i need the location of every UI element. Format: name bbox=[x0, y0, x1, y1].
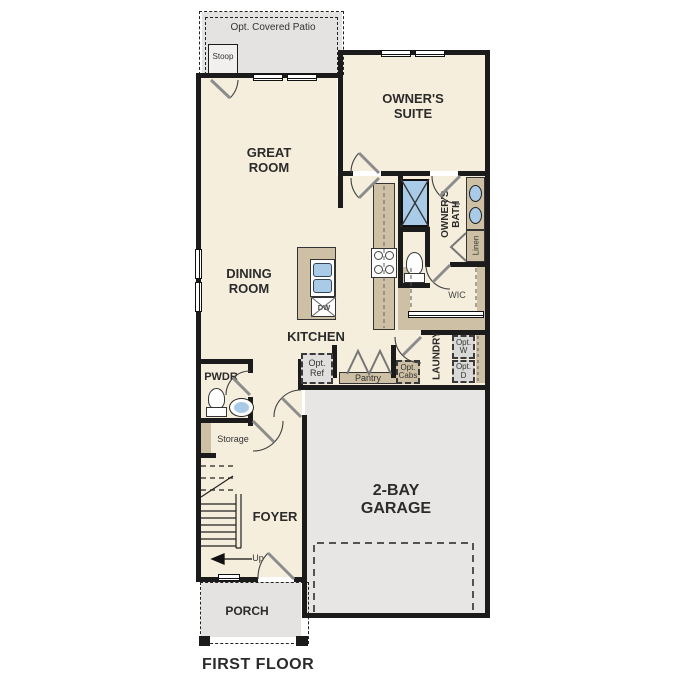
wic-shelf-box bbox=[408, 311, 484, 318]
wall bbox=[338, 78, 343, 208]
wall bbox=[450, 262, 485, 267]
opt-cabinets: Opt. Cabs bbox=[396, 360, 420, 384]
wall bbox=[398, 283, 430, 288]
window bbox=[253, 74, 283, 81]
range-burner bbox=[385, 251, 394, 260]
range-burner bbox=[374, 251, 383, 260]
wall bbox=[343, 171, 353, 176]
laundry-shelf bbox=[476, 335, 485, 383]
opt-ref-label: Opt. Ref bbox=[303, 359, 331, 378]
wic-label: WIC bbox=[437, 290, 477, 300]
up-label: Up bbox=[248, 553, 268, 563]
wall bbox=[196, 418, 253, 423]
window bbox=[381, 50, 411, 57]
dining-room-label: DINING ROOM bbox=[214, 267, 284, 296]
vanity-sink bbox=[469, 185, 482, 202]
range-burner bbox=[385, 265, 394, 274]
linen-label: Linen bbox=[473, 228, 482, 262]
range-burner bbox=[374, 265, 383, 274]
bath-toilet-tank bbox=[404, 273, 425, 283]
porch-label: PORCH bbox=[212, 605, 282, 618]
window bbox=[415, 50, 445, 57]
pwdr-sink-basin bbox=[234, 402, 249, 413]
window bbox=[218, 574, 240, 581]
opt-cabs-label: Opt. Cabs bbox=[398, 364, 418, 381]
laundry-label: LAUNDRY bbox=[431, 328, 442, 384]
wall bbox=[302, 385, 485, 390]
kitchen-label: KITCHEN bbox=[276, 330, 356, 345]
owners-suite-label: OWNER'S SUITE bbox=[363, 92, 463, 121]
stoop-label: Stoop bbox=[206, 53, 240, 62]
owners-bath-label: OWNER'S BATH bbox=[440, 177, 462, 251]
pwdr-toilet-tank bbox=[206, 407, 227, 417]
wall bbox=[196, 359, 253, 364]
patio-label: Opt. Covered Patio bbox=[208, 22, 338, 33]
pwdr-toilet-bowl bbox=[208, 388, 225, 409]
wall bbox=[485, 50, 490, 618]
window bbox=[195, 249, 202, 279]
plan-title: FIRST FLOOR bbox=[202, 656, 322, 674]
wall bbox=[381, 171, 430, 176]
opt-refrigerator: Opt. Ref bbox=[301, 353, 333, 384]
opt-washer: Opt. W bbox=[452, 335, 475, 359]
shower bbox=[401, 179, 429, 227]
wall bbox=[196, 73, 201, 582]
floor-plan: Opt. Ref Opt. Cabs Opt. W Opt. D Opt. Co… bbox=[0, 0, 687, 687]
window bbox=[287, 74, 317, 81]
wall bbox=[425, 227, 430, 267]
pwdr-label: PWDR bbox=[196, 371, 246, 383]
wall bbox=[294, 577, 307, 582]
dw-label: DW bbox=[315, 304, 333, 312]
opt-dryer-label: Opt. D bbox=[454, 363, 473, 380]
foyer-label: FOYER bbox=[240, 510, 310, 525]
wall bbox=[248, 359, 253, 373]
great-room-label: GREAT ROOM bbox=[234, 146, 304, 175]
garage-label: 2-BAY GARAGE bbox=[346, 482, 446, 518]
window bbox=[195, 282, 202, 312]
porch-post-right bbox=[296, 636, 308, 646]
wall bbox=[248, 418, 253, 426]
vanity-sink bbox=[469, 207, 482, 224]
bath-toilet-bowl bbox=[406, 252, 423, 275]
storage-label: Storage bbox=[208, 434, 258, 444]
wall bbox=[302, 613, 490, 618]
opt-dryer: Opt. D bbox=[452, 360, 475, 383]
island-sink-basin bbox=[313, 263, 332, 277]
pantry-label: Pantry bbox=[340, 373, 396, 383]
island-sink-basin bbox=[313, 279, 332, 293]
wall bbox=[458, 171, 485, 176]
opt-washer-label: Opt. W bbox=[454, 339, 473, 356]
porch-post-left bbox=[199, 636, 210, 646]
wall bbox=[196, 453, 216, 458]
wall bbox=[338, 50, 490, 55]
